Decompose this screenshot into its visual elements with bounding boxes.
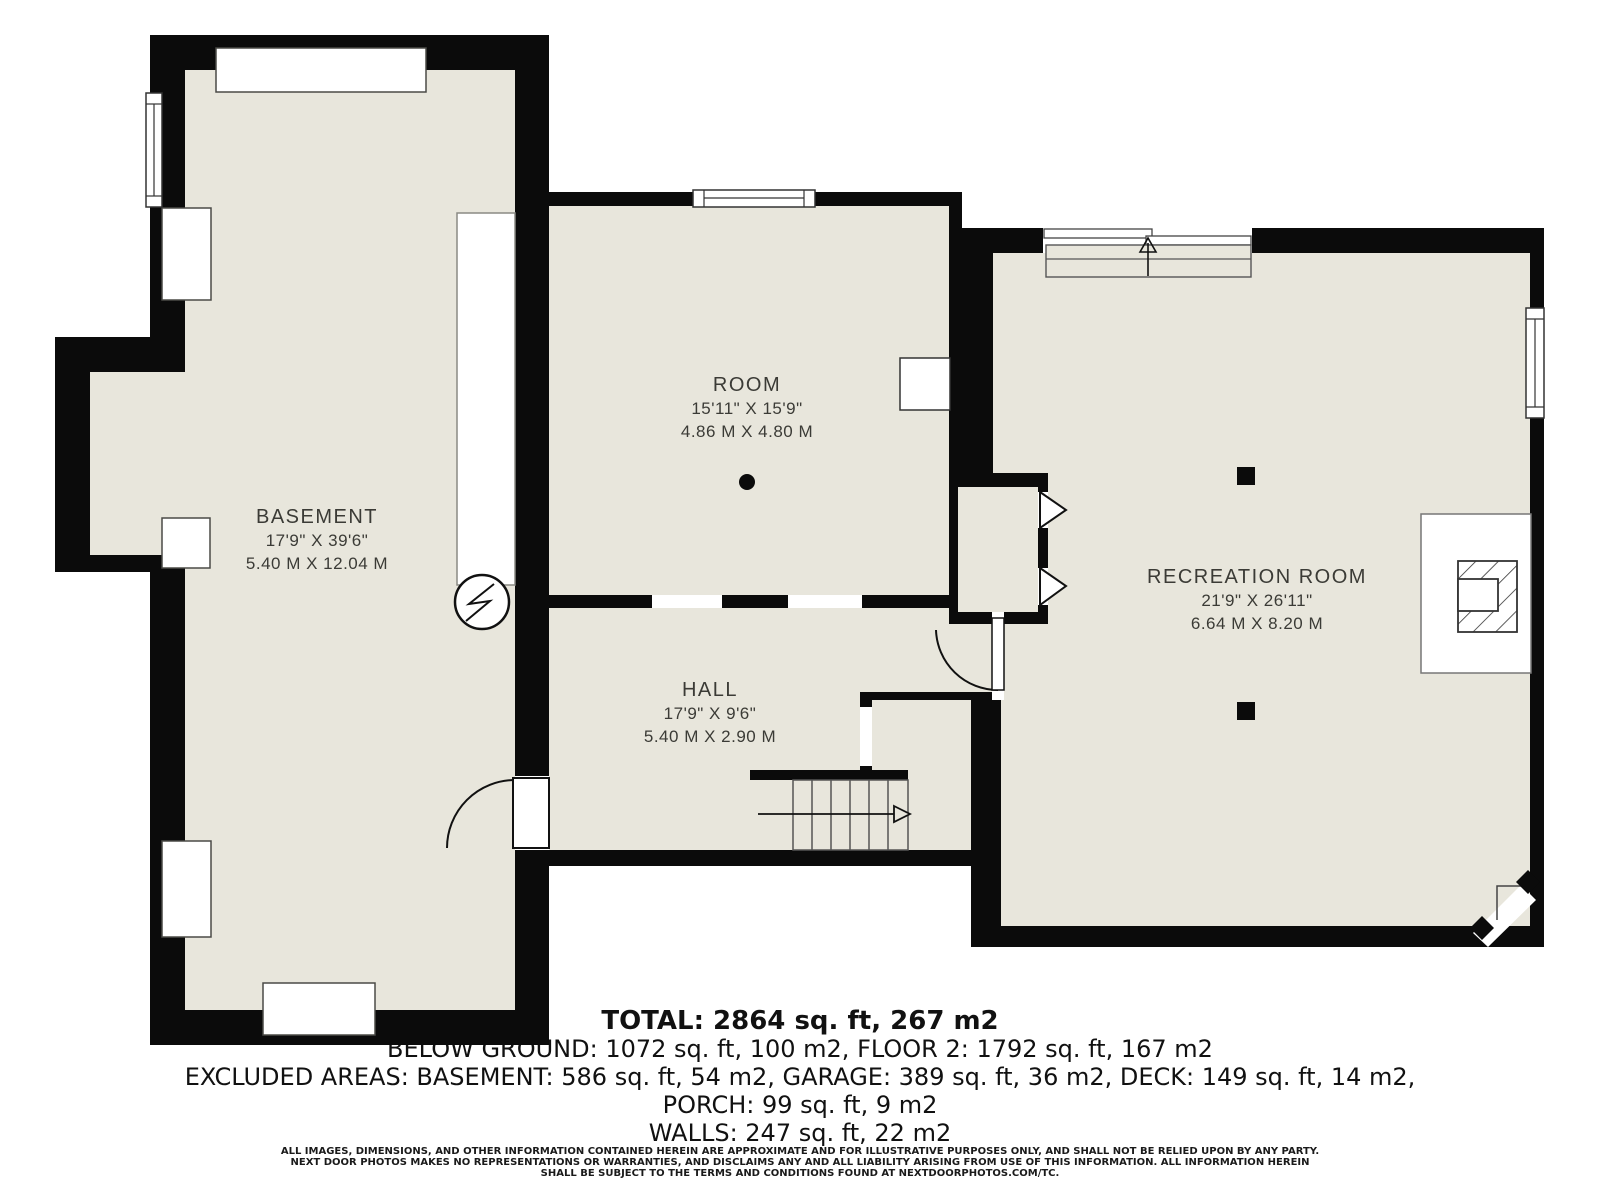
room-name: RECREATION ROOM <box>1147 566 1367 589</box>
room-name: HALL <box>644 679 776 702</box>
room-label-room: ROOM 15'11" X 15'9" 4.86 M X 4.80 M <box>681 374 813 443</box>
window <box>146 93 162 207</box>
sliding-door <box>1043 228 1252 277</box>
room-name: BASEMENT <box>246 506 388 529</box>
fixture-shelf <box>162 841 211 937</box>
room-label-hall: HALL 17'9" X 9'6" 5.40 M X 2.90 M <box>644 679 776 748</box>
window <box>693 190 815 207</box>
fixture-workbench <box>216 48 426 92</box>
room-dims-ft: 17'9" X 9'6" <box>644 702 776 725</box>
column-dot <box>739 474 755 490</box>
room-dims-ft: 15'11" X 15'9" <box>681 397 813 420</box>
vestibule-floor <box>958 487 1038 612</box>
furnace-icon <box>455 575 509 629</box>
support-post <box>1237 467 1255 485</box>
room-label-recreation: RECREATION ROOM 21'9" X 26'11" 6.64 M X … <box>1147 566 1367 635</box>
fixture-chase <box>457 213 515 585</box>
room-name: ROOM <box>681 374 813 397</box>
room-dims-ft: 17'9" X 39'6" <box>246 529 388 552</box>
room-dims-m: 6.64 M X 8.20 M <box>1147 612 1367 635</box>
fixture-bench <box>263 983 375 1035</box>
fixture-box <box>162 518 210 568</box>
room-dims-m: 5.40 M X 2.90 M <box>644 725 776 748</box>
floorplan-page: TOTAL: 2864 sq. ft, 267 m2 BELOW GROUND:… <box>0 0 1600 1200</box>
room-dims-m: 5.40 M X 12.04 M <box>246 552 388 575</box>
fireplace-icon <box>1421 514 1531 673</box>
room-dims-ft: 21'9" X 26'11" <box>1147 589 1367 612</box>
room-dims-m: 4.86 M X 4.80 M <box>681 420 813 443</box>
fixture-wall-unit <box>900 358 950 410</box>
fixture-shelf <box>162 208 211 300</box>
support-post <box>1237 702 1255 720</box>
window <box>1526 308 1544 418</box>
room-label-basement: BASEMENT 17'9" X 39'6" 5.40 M X 12.04 M <box>246 506 388 575</box>
